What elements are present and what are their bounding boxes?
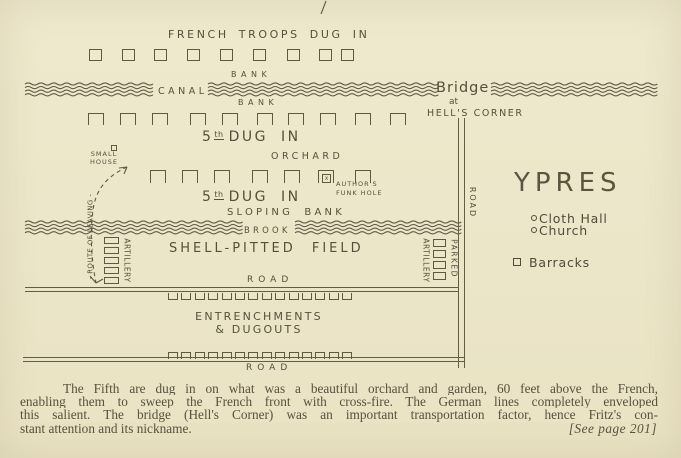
circle-marker-icon (531, 215, 537, 221)
fifth-dugout-row-2-symbol (355, 170, 371, 183)
fifth-dugout-row-1-symbol (288, 113, 304, 125)
entrenchment-row-lower-symbol (168, 352, 178, 359)
french-dugout-row-symbol (341, 49, 354, 61)
entrenchment-row-upper-symbol (181, 293, 191, 300)
ordinal-suffix: th (214, 130, 223, 140)
bridge-label: Bridge (436, 80, 489, 96)
entrenchment-row-upper-symbol (222, 293, 232, 300)
fifth-dugout-row-1-symbol (257, 113, 273, 125)
road-middle-line (25, 287, 458, 292)
route-of-leaving-label: - ROUTE OF LEAVING - (87, 186, 98, 288)
caption-line-3: this salient. The bridge (Hell's Corner)… (20, 408, 658, 421)
caption-line-1: The Fifth are dug in on what was a beaut… (20, 382, 658, 395)
page-reference: [See page 201] (490, 421, 657, 437)
ypres-title: YPRES (514, 168, 622, 198)
artillery-right-label: ARTILLERY (420, 235, 431, 287)
bridge-at-label: at (449, 97, 458, 107)
fifth-dugout-row-2-symbol (252, 170, 268, 183)
artillery-left-stack-symbol (104, 237, 119, 244)
bank-upper-label: BANK (231, 70, 271, 79)
orchard-label: ORCHARD (271, 151, 343, 162)
road-right-label: ROAD (466, 185, 477, 220)
artillery-left-stack-symbol (104, 277, 119, 284)
entrenchment-row-lower-symbol (181, 352, 191, 359)
legend-item-barracks: Barracks (529, 255, 590, 270)
artillery-left-stack-symbol (104, 267, 119, 274)
entrenchment-row-upper-symbol (329, 293, 339, 300)
fifth-dugout-row-1-symbol (88, 113, 104, 125)
entrenchment-row-lower-symbol (315, 352, 325, 359)
entrenchment-row-upper-symbol (195, 293, 205, 300)
fifth-dugout-row-1-symbol (320, 113, 336, 125)
french-troops-label: FRENCH TROOPS DUG IN (168, 28, 368, 41)
road-middle-label: ROAD (247, 275, 293, 285)
circle-marker-icon (531, 227, 537, 233)
french-dugout-row-symbol (220, 49, 233, 61)
artillery-right-stack-symbol (433, 239, 446, 247)
french-dugout-row-symbol (253, 49, 266, 61)
sloping-bank-label: SLOPING BANK (227, 207, 345, 218)
fifth-dugout-row-2-symbol (284, 170, 300, 183)
french-dugout-row-symbol (319, 49, 332, 61)
entrenchment-row-lower-symbol (329, 352, 339, 359)
fifth-dugout-row-1-symbol (152, 113, 168, 125)
entrenchment-row-lower-symbol (235, 352, 245, 359)
fifth-dugout-row-1-symbol (120, 113, 136, 125)
artillery-right-stack-symbol (433, 272, 446, 280)
entrenchment-row-upper-symbol (248, 293, 258, 300)
entrenchment-row-upper-symbol (315, 293, 325, 300)
caption-line-2: enabling them to sweep the French front … (20, 395, 658, 408)
french-dugout-row-symbol (187, 49, 200, 61)
entrenchment-row-lower-symbol (222, 352, 232, 359)
entrenchment-row-lower-symbol (195, 352, 205, 359)
road-bottom-label: ROAD (246, 363, 292, 373)
french-dugout-row-symbol (122, 49, 135, 61)
entrenchment-row-lower-symbol (342, 352, 352, 359)
small-house-label: SMALLHOUSE (84, 150, 124, 166)
fifth-dugout-row-1-symbol (390, 113, 406, 125)
french-dugout-row-symbol (154, 49, 167, 61)
entrenchment-row-lower-symbol (275, 352, 285, 359)
entrenchment-row-upper-symbol (168, 293, 178, 300)
artillery-left-stack-symbol (104, 247, 119, 254)
artillery-right-stack-symbol (433, 261, 446, 269)
entrenchment-row-upper-symbol (275, 293, 285, 300)
entrenchment-row-upper-symbol (289, 293, 299, 300)
fifth-dugout-row-1-symbol (222, 113, 238, 125)
fifth-dug-in-label-1: 5thDUG IN (202, 129, 301, 145)
funk-hole-x-marker: x (322, 174, 331, 183)
scanned-book-page: FRENCH TROOPS DUG IN BANK CANAL BANK Bri… (0, 0, 681, 458)
square-marker-icon (513, 258, 521, 266)
entrenchment-row-upper-symbol (262, 293, 272, 300)
ordinal-suffix: th (214, 190, 223, 200)
artillery-left-label: ARTILLERY (121, 235, 132, 287)
legend-item-church: Church (531, 223, 588, 238)
brook-label: BROOK (244, 226, 291, 236)
french-dugout-row-symbol (89, 49, 102, 61)
canal-label: CANAL (158, 86, 208, 97)
fifth-dugout-row-2-symbol (182, 170, 198, 183)
road-right-line (458, 118, 465, 368)
french-dugout-row-symbol (287, 49, 300, 61)
entrenchment-row-lower-symbol (208, 352, 218, 359)
fifth-dugout-row-2-symbol (214, 170, 230, 183)
entrenchment-row-lower-symbol (248, 352, 258, 359)
entrenchment-row-lower-symbol (302, 352, 312, 359)
fifth-dugout-row-2-symbol (150, 170, 166, 183)
entrenchment-row-upper-symbol (342, 293, 352, 300)
fifth-dugout-row-1-symbol (355, 113, 371, 125)
artillery-right-stack-symbol (433, 250, 446, 258)
entrenchments-label: ENTRENCHMENTS& DUGOUTS (170, 311, 348, 336)
fifth-dug-in-label-2: 5thDUG IN (202, 189, 301, 205)
shell-pitted-field-label: SHELL-PITTED FIELD (169, 241, 364, 256)
entrenchment-row-upper-symbol (208, 293, 218, 300)
entrenchment-row-lower-symbol (262, 352, 272, 359)
fifth-dugout-row-1-symbol (190, 113, 206, 125)
artillery-left-stack-symbol (104, 257, 119, 264)
bank-lower-label: BANK (238, 98, 278, 107)
hells-corner-label: HELL'S CORNER (427, 108, 524, 119)
parked-label: PARKED (448, 233, 459, 285)
entrenchment-row-lower-symbol (289, 352, 299, 359)
entrenchment-row-upper-symbol (235, 293, 245, 300)
entrenchment-row-upper-symbol (302, 293, 312, 300)
